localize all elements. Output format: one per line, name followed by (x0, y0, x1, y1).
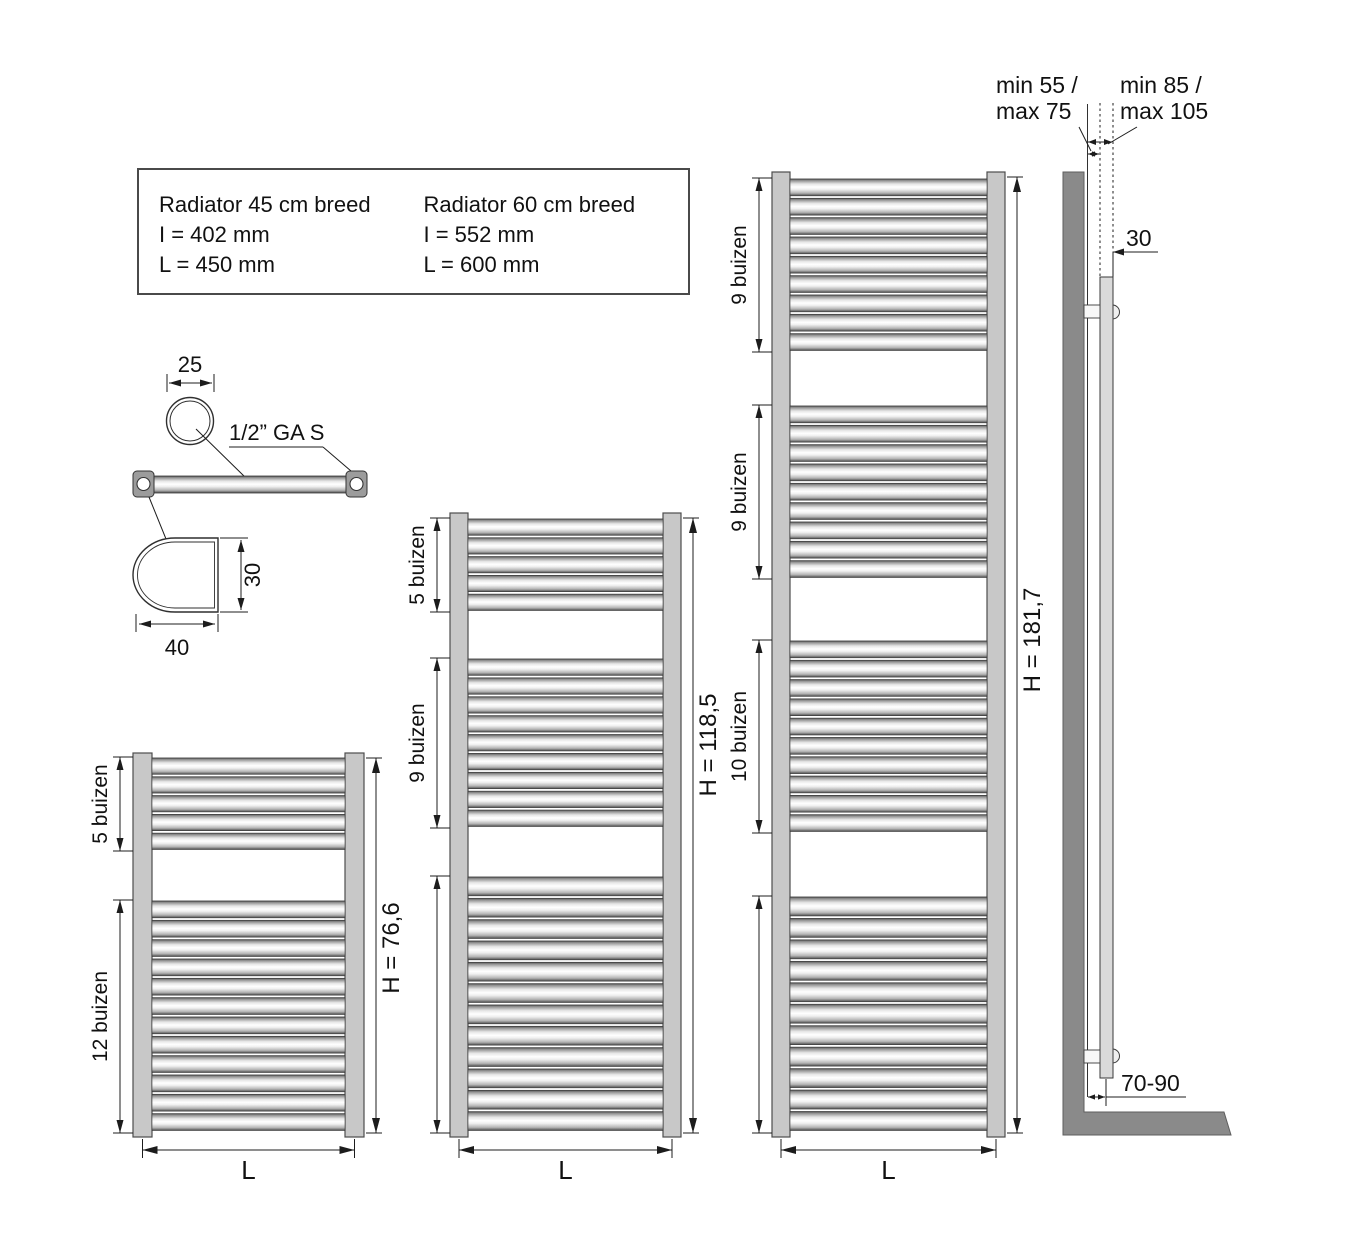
arrowhead-icon (434, 1120, 441, 1133)
radiator-h766: 5 buizen12 buizenH = 76,6L (89, 753, 405, 1185)
tube (152, 758, 345, 774)
profile-depth-label: 30 (240, 563, 265, 587)
tube (468, 810, 663, 826)
tube (468, 962, 663, 981)
arrowhead-icon (139, 621, 151, 628)
width-label: L (241, 1155, 255, 1185)
tube (468, 1005, 663, 1024)
rail-profile (133, 538, 218, 612)
arrowhead-icon (203, 621, 215, 628)
tube-count-label: 5 buizen (406, 525, 429, 604)
tube (468, 519, 663, 535)
arrowhead-icon (756, 566, 763, 579)
tube (790, 680, 987, 697)
tube (790, 541, 987, 558)
arrowhead-icon (238, 598, 245, 610)
tube (152, 796, 345, 812)
tube (152, 940, 345, 957)
spec-col-45cm: Radiator 45 cm breed I = 402 mm L = 450 … (159, 190, 424, 293)
arrowhead-icon (657, 1146, 672, 1154)
tube (468, 1026, 663, 1045)
tube (790, 295, 987, 312)
tube (468, 575, 663, 591)
tube (152, 978, 345, 995)
tube-side (150, 476, 350, 493)
arrowhead-icon (1013, 177, 1021, 192)
tube (468, 898, 663, 917)
tube (468, 734, 663, 750)
arrowhead-icon (1088, 1094, 1095, 1099)
arrowhead-icon (434, 815, 441, 828)
tube-count-label: 9 buizen (728, 452, 751, 531)
tube (790, 699, 987, 716)
tube (790, 641, 987, 658)
tube (790, 522, 987, 539)
tube (790, 1004, 987, 1023)
wall-gap-max-label: max 75 (996, 98, 1071, 124)
wall-bracket-top (1084, 305, 1100, 318)
spec-inner-width-45: I = 402 mm (159, 220, 424, 250)
tube (790, 464, 987, 481)
tube (790, 198, 987, 215)
tube (468, 678, 663, 694)
arrowhead-icon (1098, 1094, 1105, 1099)
arrowhead-icon (434, 599, 441, 612)
tube-diameter-label: 25 (178, 352, 202, 377)
radiator-h1185: 5 buizen9 buizenH = 118,5L (406, 513, 722, 1185)
arrowhead-icon (756, 820, 763, 833)
tube (790, 737, 987, 754)
tube (790, 1111, 987, 1130)
arrowhead-icon (756, 1120, 763, 1133)
tube-count-label: 9 buizen (728, 225, 751, 304)
tube (790, 940, 987, 959)
tube (468, 659, 663, 675)
arrowhead-icon (169, 380, 181, 387)
rail-left (133, 753, 152, 1137)
arrowhead-icon (117, 838, 124, 851)
tube-count-label: 5 buizen (89, 764, 112, 843)
spec-box: Radiator 45 cm breed I = 402 mm L = 450 … (137, 168, 690, 295)
tube (468, 753, 663, 769)
tube-section-circle (167, 398, 214, 445)
tube (790, 483, 987, 500)
tube (468, 1090, 663, 1109)
tube (152, 901, 345, 918)
tube (790, 1047, 987, 1066)
tube (468, 538, 663, 554)
rail-left (450, 513, 468, 1137)
tube (790, 561, 987, 578)
tube (468, 772, 663, 788)
spec-title-60: Radiator 60 cm breed (424, 190, 689, 220)
radiator-technical-drawing: 5 buizen12 buizenH = 76,6L5 buizen9 buiz… (0, 0, 1350, 1237)
tube (790, 1069, 987, 1088)
tube (790, 897, 987, 916)
rail-right (345, 753, 364, 1137)
tube (468, 941, 663, 960)
tube (790, 983, 987, 1002)
tube (790, 503, 987, 520)
tube (152, 1017, 345, 1034)
radiator-h1817: 9 buizen9 buizen10 buizenH = 181,7L (728, 172, 1046, 1185)
tube (790, 406, 987, 423)
tube (790, 425, 987, 442)
tube (790, 334, 987, 351)
arrowhead-icon (781, 1146, 796, 1154)
tube (152, 833, 345, 849)
tube-count-label: 9 buizen (406, 703, 429, 782)
arrowhead-icon (117, 757, 124, 770)
arrowhead-icon (434, 876, 441, 889)
tube (790, 276, 987, 293)
width-label: L (881, 1155, 895, 1185)
tube (152, 1114, 345, 1131)
arrowhead-icon (340, 1146, 355, 1154)
tube (468, 594, 663, 610)
connection-label: 1/2” GA S (229, 420, 324, 445)
arrowhead-icon (117, 1120, 124, 1133)
spec-col-60cm: Radiator 60 cm breed I = 552 mm L = 600 … (424, 190, 689, 293)
tube (790, 795, 987, 812)
arrowhead-icon (372, 758, 380, 773)
arrowhead-icon (459, 1146, 474, 1154)
spec-length-45: L = 450 mm (159, 250, 424, 280)
tube-depth-label: 30 (1126, 225, 1152, 251)
tube (790, 179, 987, 196)
tube (152, 1056, 345, 1073)
tube (468, 557, 663, 573)
tube (790, 815, 987, 832)
arrowhead-icon (689, 1118, 697, 1133)
arrowhead-icon (1088, 139, 1096, 145)
height-label: H = 76,6 (378, 902, 405, 993)
tube (790, 237, 987, 254)
tube (468, 1048, 663, 1067)
height-label: H = 181,7 (1019, 588, 1046, 693)
tube (790, 660, 987, 677)
arrowhead-icon (756, 405, 763, 418)
arrowhead-icon (756, 178, 763, 191)
arrowhead-icon (756, 339, 763, 352)
tube (790, 1026, 987, 1045)
tube (468, 716, 663, 732)
outer-gap-max-label: max 105 (1120, 98, 1208, 124)
rail-left (772, 172, 790, 1137)
arrowhead-icon (238, 540, 245, 552)
tube (790, 757, 987, 774)
outer-gap-min-label: min 85 / (1120, 72, 1202, 98)
tube (468, 984, 663, 1003)
tube (790, 218, 987, 235)
tube (468, 1112, 663, 1131)
tube (790, 918, 987, 937)
tube (790, 445, 987, 462)
tube (468, 791, 663, 807)
arrowhead-icon (981, 1146, 996, 1154)
arrowhead-icon (689, 518, 697, 533)
tube (152, 920, 345, 937)
wall-bracket-bottom (1084, 1050, 1100, 1063)
arrowhead-icon (434, 518, 441, 531)
tube (790, 961, 987, 980)
collar-hole-left (137, 478, 150, 491)
tube (152, 1094, 345, 1111)
arrowhead-icon (1013, 1118, 1021, 1133)
spec-length-60: L = 600 mm (424, 250, 689, 280)
arrowhead-icon (1092, 151, 1099, 156)
tube (152, 998, 345, 1015)
detail-view: 251/2” GA S3040 (133, 352, 367, 660)
rail-right (663, 513, 681, 1137)
arrowhead-icon (756, 640, 763, 653)
arrowhead-icon (756, 896, 763, 909)
tube (152, 814, 345, 830)
spec-title-45: Radiator 45 cm breed (159, 190, 424, 220)
floor-distance-label: 70-90 (1121, 1070, 1180, 1096)
tube (468, 1069, 663, 1088)
tube (790, 256, 987, 273)
tube (152, 777, 345, 793)
tube-count-label: 10 buizen (728, 691, 751, 782)
radiator-side-profile (1100, 277, 1113, 1078)
tube (152, 1075, 345, 1092)
arrowhead-icon (143, 1146, 158, 1154)
tube (790, 718, 987, 735)
profile-width-label: 40 (165, 635, 189, 660)
tube (790, 776, 987, 793)
tube (152, 959, 345, 976)
collar-hole-right (350, 478, 363, 491)
spec-inner-width-60: I = 552 mm (424, 220, 689, 250)
tube (790, 1090, 987, 1109)
tube (468, 697, 663, 713)
arrowhead-icon (372, 1118, 380, 1133)
arrowhead-icon (117, 900, 124, 913)
tube (468, 877, 663, 896)
wall-gap-min-label: min 55 / (996, 72, 1078, 98)
arrowhead-icon (200, 380, 212, 387)
tube (152, 1036, 345, 1053)
height-label: H = 118,5 (695, 694, 722, 797)
tube (790, 314, 987, 331)
tube-count-label: 12 buizen (89, 971, 112, 1062)
rail-right (987, 172, 1005, 1137)
width-label: L (558, 1155, 572, 1185)
arrowhead-icon (434, 658, 441, 671)
tube (468, 920, 663, 939)
